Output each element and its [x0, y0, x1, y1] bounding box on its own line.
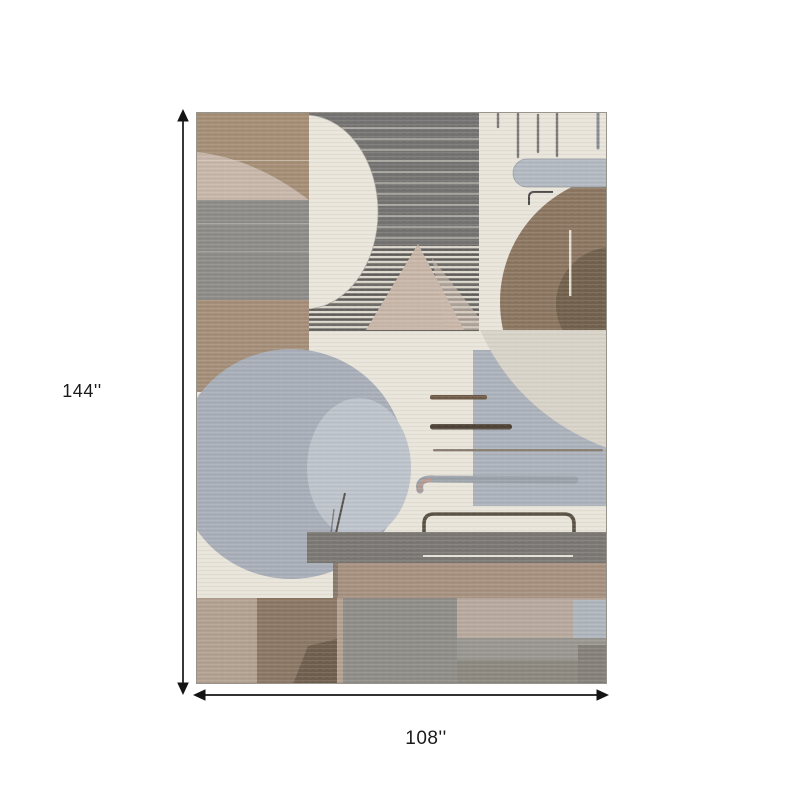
width-dimension-label: 108'' [374, 728, 478, 750]
height-dimension-label: 144'' [52, 381, 112, 402]
dimension-diagram: 144'' 108'' [0, 0, 800, 800]
height-dimension-arrow-icon [174, 109, 192, 695]
rug-artwork [196, 112, 607, 684]
width-dimension-arrow-icon [191, 686, 611, 704]
rug-texture [196, 112, 607, 684]
rug-image [196, 112, 607, 684]
